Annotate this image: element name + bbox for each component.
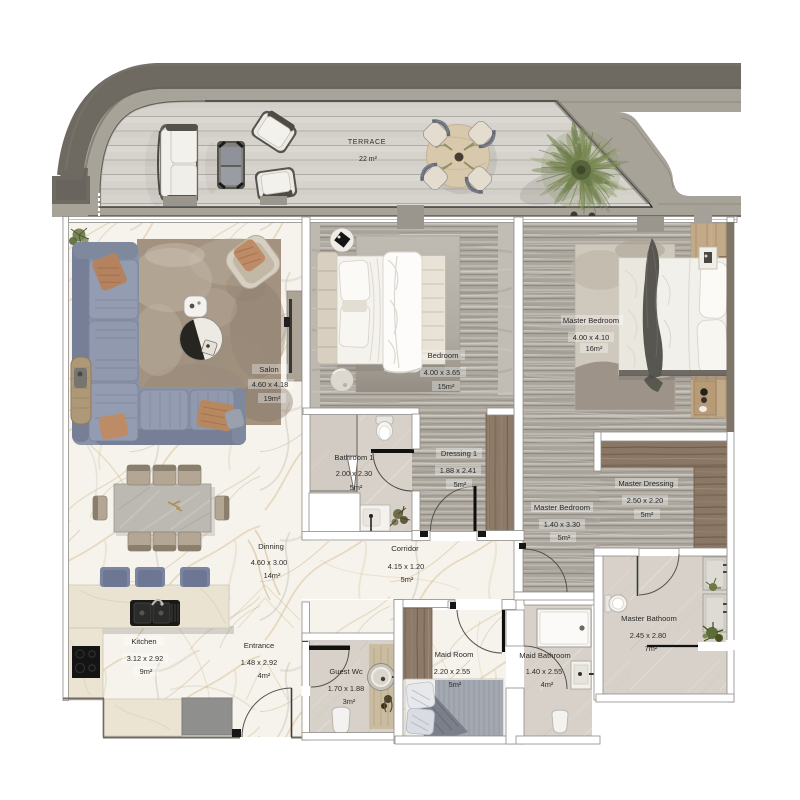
svg-text:Bedroom: Bedroom	[428, 351, 459, 360]
svg-text:Master Dressing: Master Dressing	[618, 479, 673, 488]
svg-text:Entrance: Entrance	[244, 641, 274, 650]
svg-text:2.45 x 2.80: 2.45 x 2.80	[630, 631, 667, 640]
svg-text:5m²: 5m²	[558, 533, 571, 542]
svg-text:19m²: 19m²	[264, 394, 281, 403]
svg-text:2.20 x 2.55: 2.20 x 2.55	[434, 667, 471, 676]
svg-text:9m²: 9m²	[140, 667, 153, 676]
svg-text:Master Bedroom: Master Bedroom	[534, 503, 590, 512]
svg-text:1.70 x 1.88: 1.70 x 1.88	[328, 684, 365, 693]
svg-text:Dressing 1: Dressing 1	[441, 449, 477, 458]
svg-text:14m²: 14m²	[264, 571, 281, 580]
svg-text:3m²: 3m²	[343, 697, 356, 706]
svg-text:1.88 x 2.41: 1.88 x 2.41	[440, 466, 477, 475]
svg-text:Dinning: Dinning	[258, 542, 284, 551]
svg-text:Salon: Salon	[259, 365, 278, 374]
svg-text:Master Bathoom: Master Bathoom	[621, 614, 677, 623]
svg-text:5m²: 5m²	[401, 575, 414, 584]
svg-text:4.15 x 1.20: 4.15 x 1.20	[388, 562, 425, 571]
svg-text:1.48 x 2.92: 1.48 x 2.92	[241, 658, 278, 667]
svg-text:4.60 x 4.18: 4.60 x 4.18	[252, 380, 289, 389]
svg-text:Kitchen: Kitchen	[131, 637, 156, 646]
svg-text:Master Bedroom: Master Bedroom	[563, 316, 619, 325]
svg-text:4m²: 4m²	[541, 680, 554, 689]
svg-text:2.00 x 2.30: 2.00 x 2.30	[336, 469, 373, 478]
svg-text:1.40 x 3.30: 1.40 x 3.30	[544, 520, 581, 529]
svg-text:22 m²: 22 m²	[359, 156, 378, 163]
svg-text:7m²: 7m²	[645, 644, 658, 653]
svg-text:4.00 x 4.10: 4.00 x 4.10	[573, 333, 610, 342]
svg-text:4m²: 4m²	[258, 671, 271, 680]
svg-text:4.60 x 3.00: 4.60 x 3.00	[251, 558, 288, 567]
svg-text:3.12 x 2.92: 3.12 x 2.92	[127, 654, 164, 663]
svg-text:4.00 x 3.65: 4.00 x 3.65	[424, 368, 461, 377]
svg-text:5m²: 5m²	[449, 680, 462, 689]
svg-text:TERRACE: TERRACE	[348, 139, 386, 146]
svg-text:5m²: 5m²	[641, 510, 654, 519]
svg-text:5m²: 5m²	[454, 480, 467, 489]
svg-text:16m²: 16m²	[586, 344, 603, 353]
svg-text:Corridor: Corridor	[391, 544, 419, 553]
svg-text:2.50 x 2.20: 2.50 x 2.20	[627, 496, 664, 505]
svg-text:Bathroom 1: Bathroom 1	[334, 453, 373, 462]
svg-text:Maid Bathroom: Maid Bathroom	[519, 651, 571, 660]
svg-text:Maid Room: Maid Room	[435, 650, 474, 659]
svg-text:5m²: 5m²	[350, 483, 363, 492]
svg-text:1.40 x 2.55: 1.40 x 2.55	[526, 667, 563, 676]
svg-text:Guest Wc: Guest Wc	[329, 667, 363, 676]
svg-text:15m²: 15m²	[438, 382, 455, 391]
